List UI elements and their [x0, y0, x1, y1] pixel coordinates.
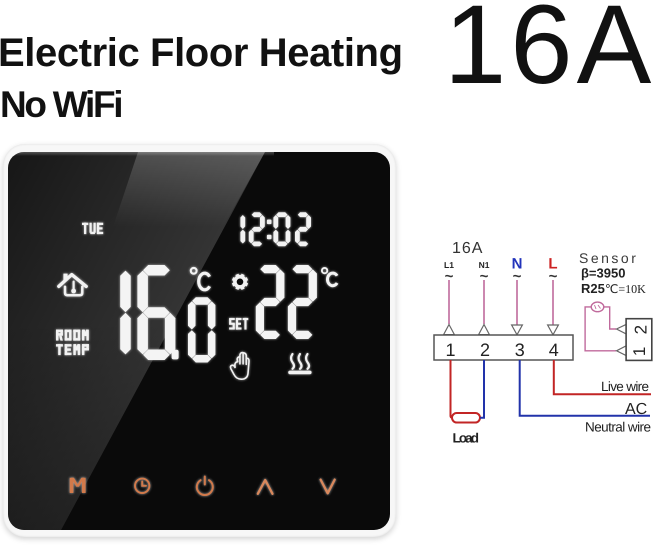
- svg-text:Load: Load: [453, 431, 480, 446]
- svg-text:1: 1: [445, 340, 455, 360]
- svg-text:Live wire: Live wire: [601, 379, 649, 394]
- svg-text:2: 2: [631, 325, 650, 334]
- svg-text:β=3950: β=3950: [581, 266, 625, 281]
- svg-text:1: 1: [630, 347, 649, 356]
- svg-text:Neutral wire: Neutral wire: [585, 420, 651, 435]
- svg-text:4: 4: [549, 340, 559, 360]
- svg-text:Sensor: Sensor: [579, 250, 638, 266]
- svg-text:2: 2: [480, 340, 490, 360]
- svg-text:16A: 16A: [452, 240, 483, 257]
- svg-text:R25℃=10K: R25℃=10K: [581, 281, 646, 296]
- svg-text:AC: AC: [625, 401, 647, 418]
- svg-text:3: 3: [515, 340, 525, 360]
